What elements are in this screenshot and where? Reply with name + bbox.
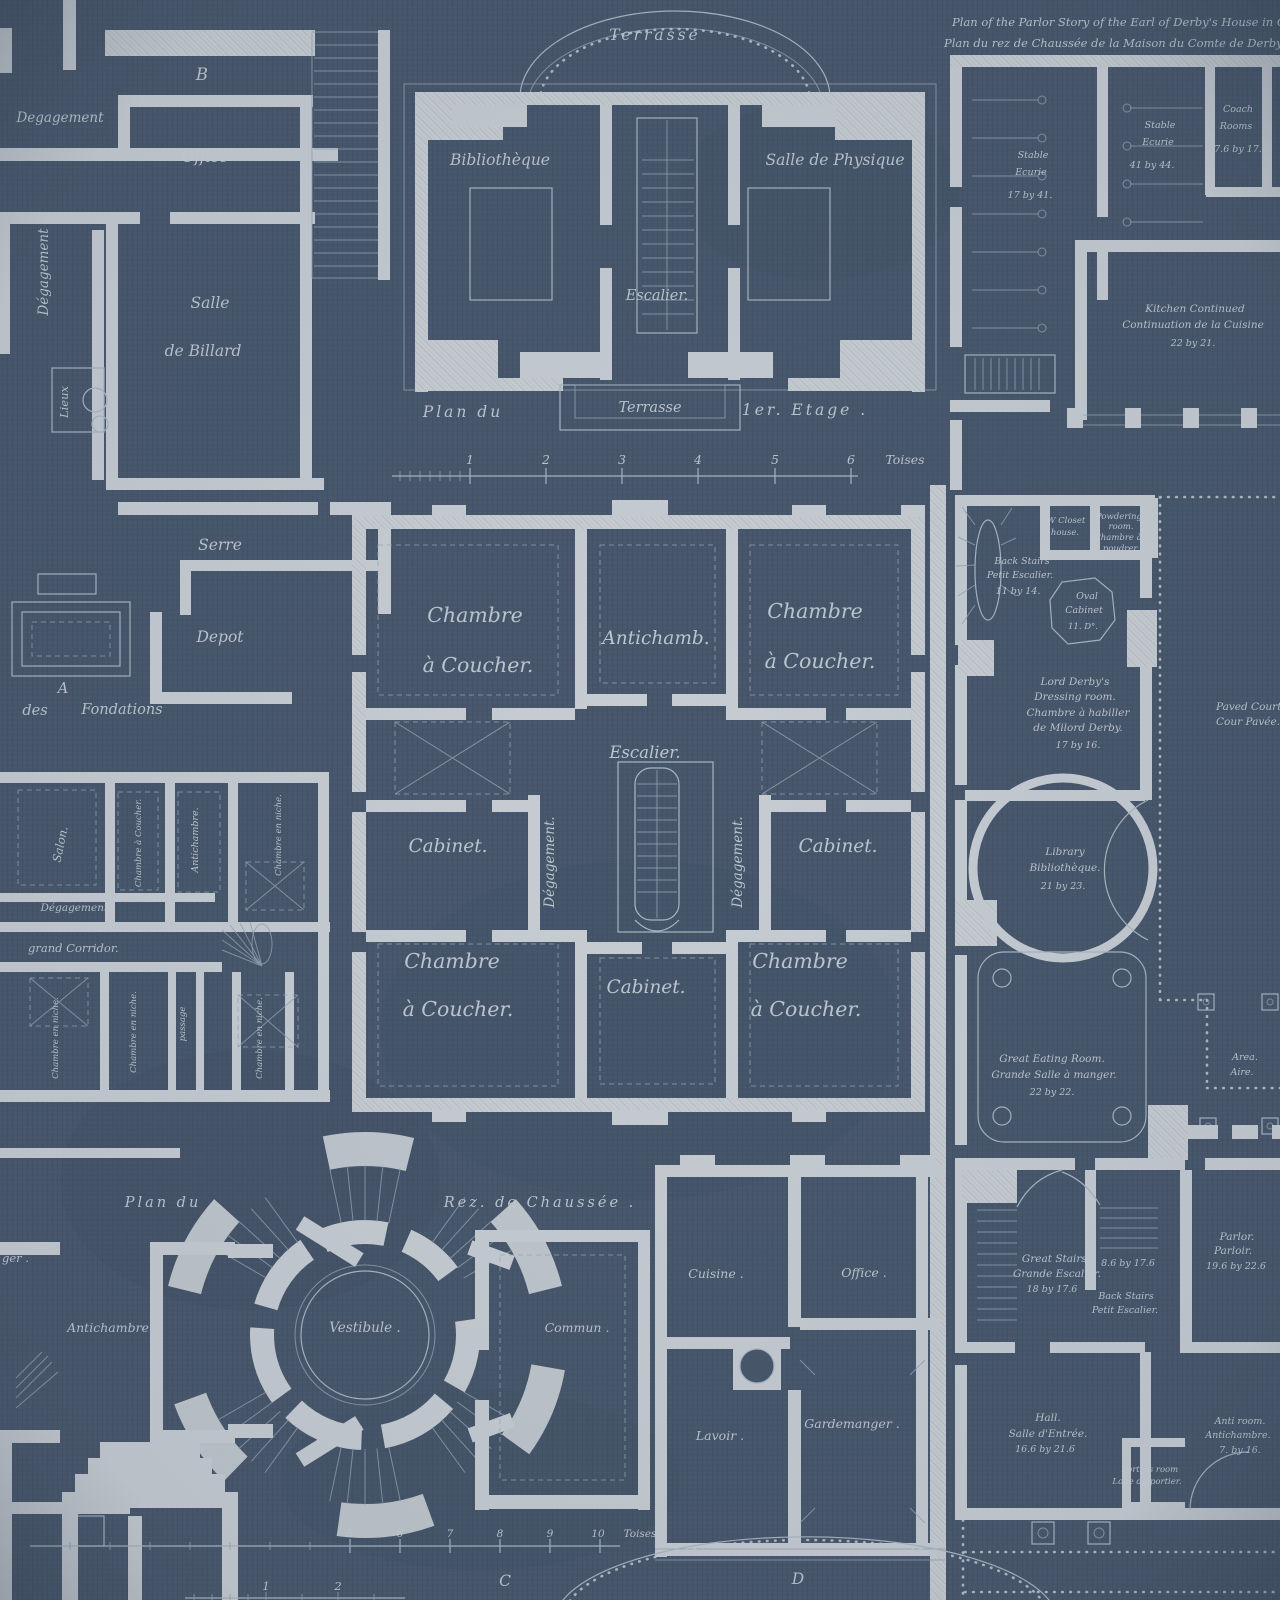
label-paved-court-fr: Cour Pavée.: [1216, 716, 1280, 728]
label-powdering-4: poudrer.: [1103, 544, 1139, 554]
size-back-stairs2: 8.6 by 17.6: [1101, 1258, 1155, 1269]
room-label-cuisine: Cuisine .: [688, 1266, 743, 1281]
label-wcloset-2: house.: [1051, 528, 1079, 538]
title-french: Plan du rez de Chaussée de la Maison du …: [943, 36, 1280, 50]
label-back-stairs2-en: Back Stairs: [1097, 1291, 1153, 1302]
label-dressing-2: Dressing room.: [1033, 691, 1116, 703]
label-eating-fr: Grande Salle à manger.: [991, 1069, 1116, 1081]
scale-tick-2: 2: [541, 452, 550, 467]
room-label-coucher-bl: à Coucher.: [403, 997, 514, 1021]
size-great-stairs: 18 by 17.6: [1027, 1284, 1078, 1295]
label-dressing-1: Lord Derby's: [1040, 676, 1111, 688]
size-dressing: 17 by 16.: [1056, 740, 1101, 751]
room-label-office-ground: Office .: [841, 1265, 886, 1280]
label-porters-fr: Loge du portier.: [1111, 1477, 1181, 1487]
caption-fondations: Fondations: [80, 702, 162, 718]
room-label-niche-b2: Chambre en niche.: [129, 991, 139, 1073]
room-size-kitchen: 22 by 21.: [1170, 338, 1216, 349]
room-label-chambre-coucher-v: Chambre à Coucher.: [133, 799, 144, 887]
label-back-stairs2-fr: Petit Escalier.: [1091, 1305, 1158, 1316]
label-area-en: Area.: [1231, 1052, 1258, 1063]
label-anti-fr: Antichambre.: [1204, 1430, 1270, 1441]
scale-tick-3: 3: [618, 452, 626, 467]
scale2-tick-9: 9: [547, 1528, 554, 1540]
scale3-tick-2: 2: [333, 1579, 341, 1593]
room-size-stable2: 41 by 44.: [1129, 160, 1175, 171]
size-hall: 16.6 by 21.6: [1015, 1444, 1075, 1455]
room-label-antichamb: Antichamb.: [600, 628, 709, 649]
room-label-depot: Depot: [195, 628, 244, 646]
label-porters-en: Porters room: [1121, 1465, 1179, 1475]
scale-tick-4: 4: [693, 452, 702, 467]
room-label-niche-b3: Chambre en niche.: [255, 997, 265, 1079]
room-label-stable2-en: Stable: [1145, 120, 1176, 131]
size-parlor: 19.6 by 22.6: [1206, 1261, 1266, 1272]
kitchen-well: [733, 1342, 781, 1390]
label-terrasse-bottom: Terrasse: [618, 400, 681, 416]
label-dressing-4: de Milord Derby.: [1033, 722, 1122, 734]
corridor-label-degagement-mini: Dégagement.: [39, 902, 111, 914]
blueprint-wallpaper: B Degagement Office Dégagement Salle de …: [0, 0, 1280, 1600]
room-label-coucher-tr: à Coucher.: [765, 649, 876, 673]
letter-b: B: [195, 65, 208, 84]
label-terrasse-top: Terrasse: [609, 26, 700, 44]
room-label-stable1-en: Stable: [1018, 150, 1049, 161]
room-label-degagement: Degagement: [15, 110, 104, 126]
room-label-office: Office: [182, 148, 229, 166]
label-wcloset-1: W Closet: [1047, 516, 1086, 526]
caption-premier-etage: 1er. Etage .: [742, 401, 868, 419]
room-label-antichambre-v: Antichambre.: [190, 807, 201, 873]
corridor-label-passage: passage: [178, 1007, 188, 1042]
caption-plan-du-ground: Plan du: [124, 1195, 202, 1211]
label-eating-en: Great Eating Room.: [999, 1053, 1105, 1065]
size-anti: 7. by 16.: [1219, 1445, 1261, 1456]
room-label-chambre-tr: Chambre: [767, 599, 863, 623]
corridor-label-degagement-right: Dégagement.: [730, 816, 746, 908]
label-area-fr: Aire.: [1229, 1067, 1253, 1078]
room-label-coucher-br: à Coucher.: [751, 997, 862, 1021]
room-label-salle: Salle: [191, 294, 230, 312]
room-label-gardemanger: Gardemanger .: [804, 1416, 900, 1431]
room-label-kitchen-fr: Continuation de la Cuisine: [1122, 319, 1264, 331]
title-english: Plan of the Parlor Story of the Earl of …: [951, 15, 1280, 29]
label-great-stairs-fr: Grande Escalier.: [1013, 1268, 1101, 1280]
room-label-stable1-fr: Ecurie: [1014, 167, 1047, 178]
size-back-stairs1: 11 by 14.: [996, 586, 1041, 597]
label-library-fr: Bibliothèque.: [1028, 862, 1100, 874]
divider-wall: [930, 485, 946, 1600]
scale2-tick-8: 8: [497, 1528, 504, 1540]
corridor-label-grand-corridor: grand Corridor.: [28, 941, 119, 955]
caption-plan-du: Plan du: [422, 403, 503, 421]
room-label-de-billard: de Billard: [165, 342, 242, 360]
room-label-niche-b1: Chambre en niche.: [51, 997, 61, 1079]
room-label-chambre-tl: Chambre: [427, 603, 523, 627]
room-label-chambre-br: Chambre: [752, 949, 848, 973]
corridor-label-degagement-left: Dégagement.: [542, 816, 558, 908]
room-label-coucher-tl: à Coucher.: [423, 653, 534, 677]
blueprint-canvas: B Degagement Office Dégagement Salle de …: [0, 0, 1280, 1600]
scale2-tick-5: 5: [347, 1528, 354, 1540]
label-back-stairs1-en: Back Stairs: [993, 556, 1049, 567]
caption-des: des: [22, 703, 47, 719]
label-oval-1: Oval: [1076, 591, 1098, 602]
scale2-unit: Toises: [624, 1528, 657, 1540]
room-label-escalier: Escalier.: [625, 288, 689, 304]
caption-rez-de-chaussee: Rez. de Chaussée .: [443, 1195, 637, 1211]
room-label-commun: Commun .: [545, 1320, 610, 1335]
room-label-escalier-central: Escalier.: [608, 743, 680, 762]
label-powdering-3: Chambre à: [1094, 532, 1141, 543]
scale-tick-1: 1: [466, 452, 474, 467]
letter-a: A: [56, 681, 68, 697]
label-parlor-en: Parlor.: [1219, 1231, 1255, 1243]
room-label-salle-de-physique: Salle de Physique: [765, 151, 904, 169]
room-label-stable2-fr: Ecurie: [1141, 137, 1174, 148]
room-label-cabinet-right: Cabinet.: [798, 836, 877, 857]
room-label-chambre-bl: Chambre: [404, 949, 500, 973]
letter-c: C: [499, 1572, 511, 1590]
room-label-antichambre-ground: Antichambre .: [66, 1320, 157, 1335]
label-powdering-1: Powdering: [1095, 512, 1142, 522]
label-paved-court-en: Paved Court: [1215, 701, 1280, 713]
label-powdering-2: room.: [1108, 522, 1133, 532]
label-dressing-3: Chambre à habiller: [1027, 707, 1131, 719]
room-label-lieux: Lieux: [57, 385, 71, 419]
room-size-coach: 7.6 by 17.6: [1214, 144, 1268, 155]
size-library: 21 by 23.: [1040, 881, 1086, 892]
letter-d: D: [791, 1570, 805, 1588]
room-label-coach: Coach: [1223, 104, 1253, 115]
room-label-serre: Serre: [198, 536, 242, 554]
scale3-tick-1: 1: [262, 1579, 269, 1593]
scale-tick-6: 6: [847, 452, 855, 467]
label-oval-2: Cabinet: [1065, 605, 1103, 616]
room-label-lavoir: Lavoir .: [695, 1428, 744, 1443]
terrace-hatch-band: [105, 30, 315, 56]
label-library-en: Library: [1044, 846, 1085, 858]
room-label-cabinet-left: Cabinet.: [408, 836, 487, 857]
label-anti-en: Anti room.: [1214, 1416, 1266, 1427]
scale-unit: Toises: [885, 452, 924, 467]
size-eating: 22 by 22.: [1029, 1087, 1075, 1098]
room-label-niche-top: Chambre en niche.: [274, 794, 284, 876]
size-oval: 11. D°.: [1068, 622, 1098, 632]
scale-tick-5: 5: [771, 452, 779, 467]
room-label-vestibule: Vestibule .: [329, 1320, 400, 1336]
scale2-tick-7: 7: [447, 1528, 454, 1540]
room-label-kitchen-en: Kitchen Continued: [1144, 303, 1245, 315]
label-hall-fr: Salle d'Entrée.: [1009, 1428, 1088, 1440]
label-back-stairs1-fr: Petit Escalier.: [986, 570, 1053, 581]
room-label-cabinet-bottom: Cabinet.: [606, 977, 685, 998]
room-label-cut-fragment: ger .: [2, 1251, 29, 1265]
label-great-stairs-en: Great Stairs.: [1022, 1253, 1090, 1265]
room-label-degagement-vertical: Dégagement: [36, 228, 52, 317]
scale2-tick-10: 10: [591, 1528, 605, 1540]
scale2-tick-6: 6: [397, 1528, 404, 1540]
room-label-coach-rooms: Rooms: [1219, 121, 1253, 132]
room-size-stable1: 17 by 41.: [1008, 190, 1053, 201]
room-label-bibliotheque: Bibliothèque: [449, 151, 550, 169]
label-parlor-fr: Parloir.: [1213, 1245, 1252, 1257]
label-hall-en: Hall.: [1034, 1412, 1060, 1424]
